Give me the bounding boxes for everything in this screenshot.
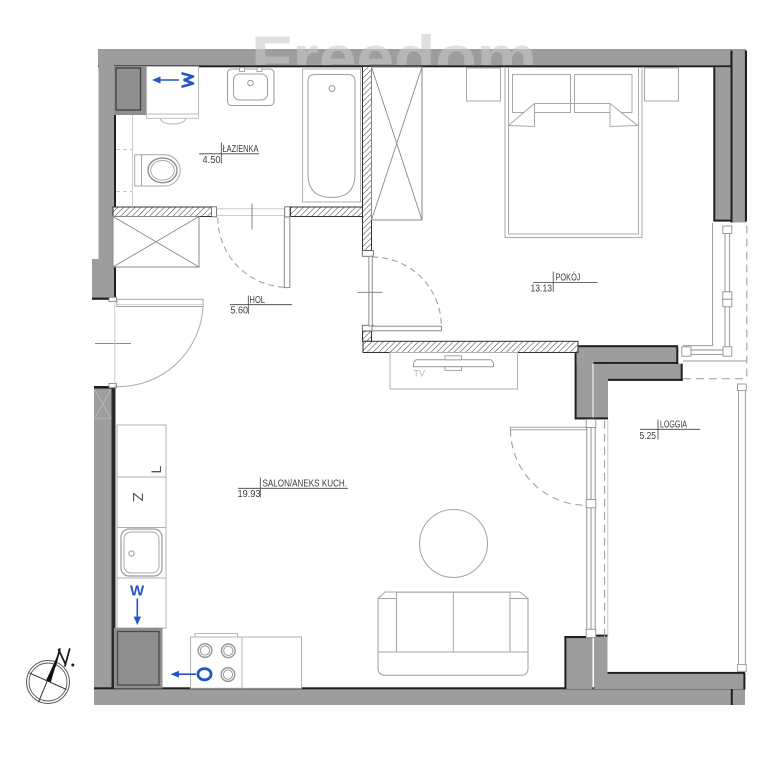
svg-text:TV: TV: [414, 369, 426, 379]
svg-text:5.60: 5.60: [231, 306, 249, 317]
svg-text:19.93: 19.93: [238, 489, 261, 500]
svg-text:Z: Z: [129, 493, 146, 502]
svg-text:POKÓJ: POKÓJ: [556, 271, 581, 284]
svg-text:L: L: [148, 466, 164, 474]
svg-text:W: W: [130, 583, 145, 600]
svg-text:LOGGIA: LOGGIA: [660, 420, 687, 431]
svg-text:SALON/ANEKS KUCH.: SALON/ANEKS KUCH.: [263, 479, 348, 490]
svg-text:5.25: 5.25: [640, 431, 657, 442]
svg-text:13.13: 13.13: [531, 284, 553, 295]
svg-text:ŁAZIENKA: ŁAZIENKA: [223, 144, 259, 155]
svg-text:4.50: 4.50: [203, 155, 221, 166]
